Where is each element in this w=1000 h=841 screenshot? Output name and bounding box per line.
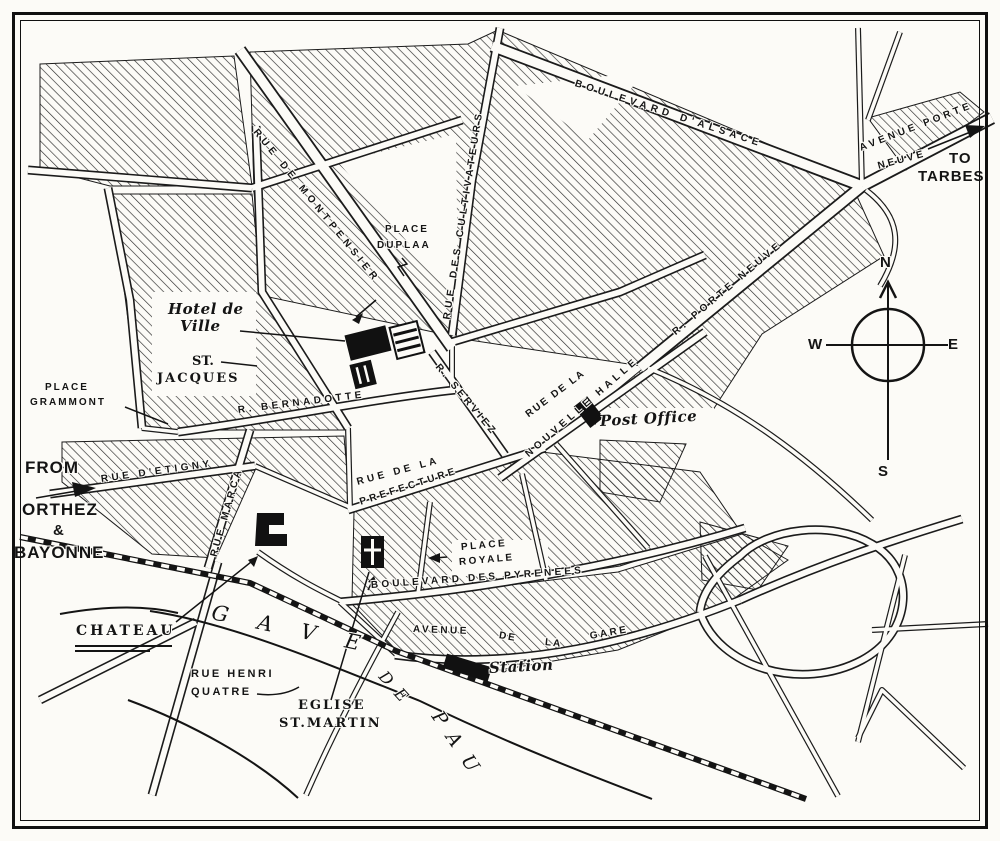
label-post-office: Post Office <box>600 407 698 430</box>
label-compass-e: E <box>948 336 959 353</box>
label-rue-henri-quatre-2: QUATRE <box>191 686 252 698</box>
map-labels: BOULEVARD D'ALSACEAVENUE PORTENEUVETOTAR… <box>0 0 1000 841</box>
label-hotel-de-ville-1: Hotel de <box>168 300 244 318</box>
label-st-jacques-1: ST. <box>192 354 214 369</box>
label-to: TO <box>949 150 972 167</box>
label-rue-detigny: RUE D'ETIGNY <box>100 458 213 485</box>
label-r-bernadotte: R. BERNADOTTE <box>237 389 365 415</box>
label-rue-des-cultivateurs: RUE DES CULTIVATEURS <box>442 109 486 320</box>
label-boulevard-des-pyrenees: BOULEVARD DES PYRENEES <box>371 565 585 591</box>
label-ampersand: & <box>53 522 65 539</box>
label-hotel-de-ville-2: Ville <box>180 317 221 335</box>
label-station: Station <box>489 656 554 677</box>
label-bayonne: BAYONNE <box>14 543 104 563</box>
label-pau: PAU <box>427 707 492 788</box>
label-from: FROM <box>25 458 79 478</box>
label-avenue-de-la-gare-2: DE <box>498 630 518 644</box>
map-of-pau: BOULEVARD D'ALSACEAVENUE PORTENEUVETOTAR… <box>0 0 1000 841</box>
label-tarbes: TARBES <box>918 168 985 185</box>
label-de: DE <box>375 667 419 713</box>
label-rue-henri-quatre-1: RUE HENRI <box>191 668 274 680</box>
label-eglise-st-martin-2: ST.MARTIN <box>279 716 382 731</box>
label-r-porte-neuve: R. PORTE NEUVE <box>670 239 785 338</box>
label-boulevard-dalsace: BOULEVARD D'ALSACE <box>573 78 764 149</box>
label-rue-de-montpensier: RUE DE MONTPENSIER <box>251 127 382 285</box>
label-compass-n: N <box>880 254 892 271</box>
label-place-duplaa-2: DUPLAA <box>377 240 431 251</box>
label-st-jacques-2: JACQUES <box>157 371 240 386</box>
label-place-royale-2: ROYALE <box>459 552 516 568</box>
label-chateau: CHATEAU <box>76 623 176 639</box>
label-avenue-de-la-gare-1: AVENUE <box>413 624 469 637</box>
label-place-royale-1: PLACE <box>461 538 508 553</box>
label-gave: GAVE <box>210 600 392 661</box>
label-avenue-porte: AVENUE PORTE <box>858 100 974 153</box>
label-place-grammont-1: PLACE <box>45 382 89 393</box>
label-rue-marca: RUE MARCA <box>209 466 245 558</box>
label-compass-s: S <box>878 463 889 480</box>
label-compass-w: W <box>808 336 823 353</box>
label-place-duplaa-1: PLACE <box>385 224 429 235</box>
label-avenue-de-la-gare-3: LA <box>544 637 562 650</box>
label-avenue-de-la-gare-4: GARE <box>589 624 629 642</box>
label-eglise-st-martin-1: EGLISE <box>298 698 366 713</box>
label-orthez: ORTHEZ <box>22 500 98 520</box>
label-place-grammont-2: GRAMMONT <box>30 397 106 408</box>
label-r-serviez: R. SERVIEZ <box>433 362 500 438</box>
